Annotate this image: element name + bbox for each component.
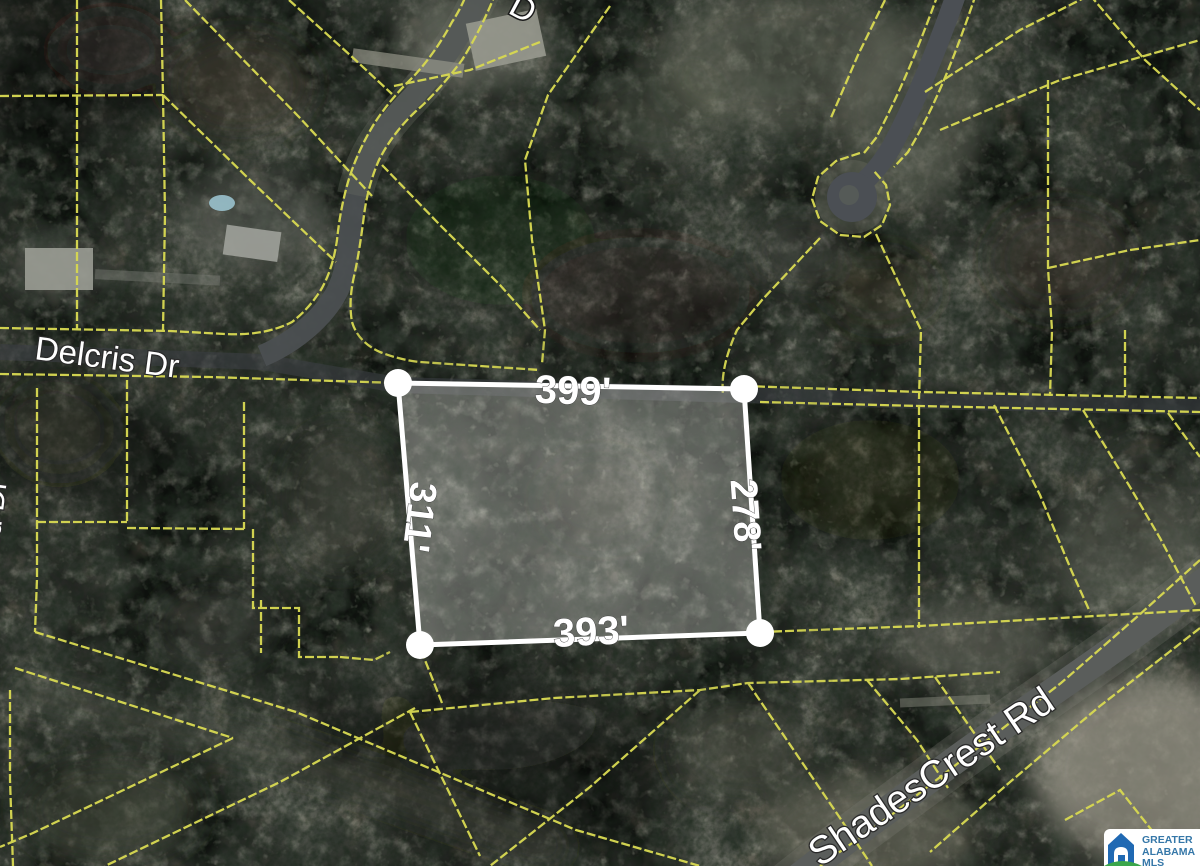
- svg-text:MLS: MLS: [1142, 857, 1164, 866]
- svg-text:GREATER: GREATER: [1142, 834, 1193, 846]
- svg-text:311': 311': [394, 480, 444, 555]
- svg-text:393': 393': [552, 608, 630, 656]
- svg-text:399': 399': [534, 368, 612, 415]
- svg-text:278': 278': [722, 477, 769, 552]
